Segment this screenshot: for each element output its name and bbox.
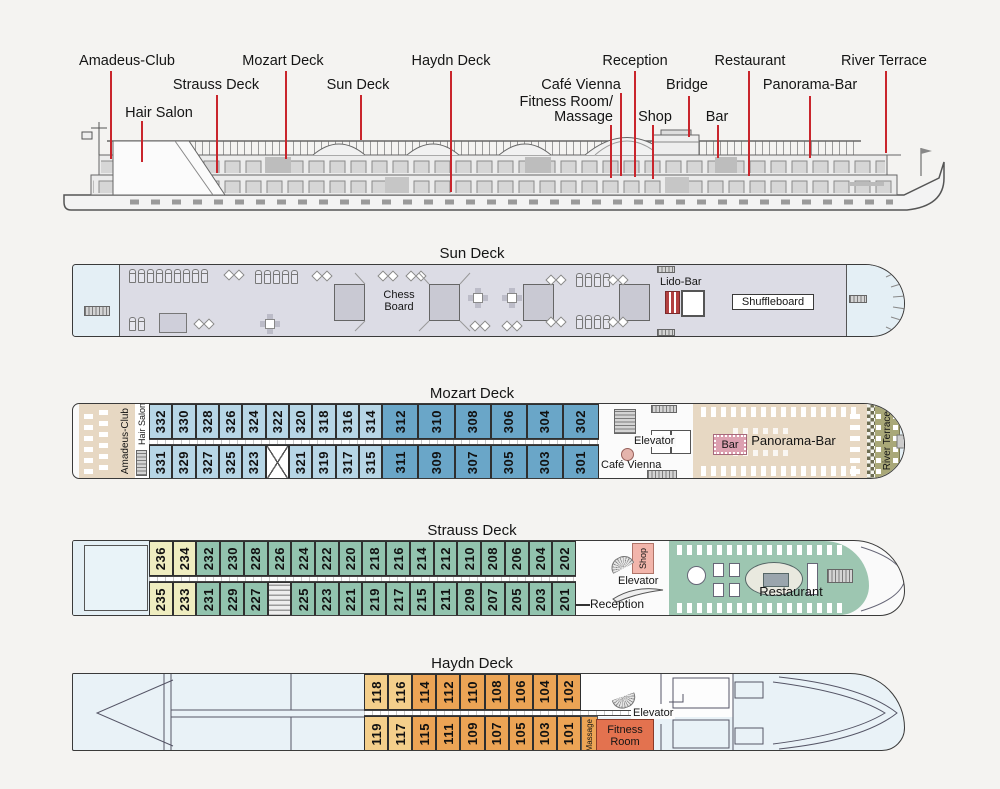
cabin-number: 221: [343, 588, 358, 611]
leader-line-reception: [634, 71, 636, 177]
cabin-number: 301: [573, 451, 588, 474]
cabin-325[interactable]: 325: [219, 445, 242, 479]
cabin-308[interactable]: 308: [455, 404, 491, 439]
leader-line-hair-salon: [141, 121, 143, 162]
stairs-icon: [657, 329, 675, 336]
cabin-number: 110: [465, 681, 480, 703]
cabin-number: 229: [225, 588, 240, 611]
cabin-101[interactable]: 101: [557, 716, 581, 751]
table-icon: [473, 293, 483, 303]
leader-line-restaurant: [748, 71, 750, 176]
window-band: [867, 404, 875, 478]
leader-line-cafe-vienna: [620, 93, 622, 176]
cabin-304[interactable]: 304: [527, 404, 563, 439]
cabin-number: 211: [438, 588, 453, 610]
cabin-number: 208: [485, 547, 500, 570]
cabin-117[interactable]: 117: [388, 716, 412, 751]
haydn-cabin-row-top: 118116114112110108106104102: [364, 674, 581, 710]
massage-vertical-label: Massage: [585, 719, 594, 751]
fitness-room-label: Fitness Room: [602, 724, 648, 748]
cabin-number: 305: [501, 451, 516, 474]
cabin-number: 329: [176, 451, 191, 474]
label-bridge: Bridge: [666, 77, 708, 93]
cabin-number: 209: [462, 588, 477, 611]
label-hair-salon: Hair Salon: [125, 105, 193, 121]
stairs-icon: [827, 569, 853, 583]
cabin-number: 328: [200, 410, 215, 433]
cabin-number: 103: [537, 722, 552, 745]
label-cafe-vienna: Café Vienna: [541, 77, 621, 93]
cabin-227[interactable]: 227: [244, 582, 268, 616]
hair-salon-vertical-label: Hair Salon: [135, 404, 149, 444]
cabin-228[interactable]: 228: [244, 541, 268, 576]
sun-deck-stern-area: [73, 265, 120, 336]
cabin-number: 104: [537, 680, 552, 703]
stairs-icon: [647, 470, 677, 479]
cabin-203[interactable]: 203: [529, 582, 553, 616]
cabin-number: 215: [414, 588, 429, 611]
cabin-331[interactable]: 331: [149, 445, 172, 479]
deck-plan-page: Amadeus-Club Mozart Deck Haydn Deck Rece…: [0, 0, 1000, 789]
cabin-number: 117: [393, 723, 408, 745]
cabin-221[interactable]: 221: [339, 582, 363, 616]
cabin-number: 307: [465, 451, 480, 474]
table-icon: [729, 563, 740, 577]
table-icon: [713, 583, 724, 597]
stairs-icon: [657, 266, 675, 273]
cabin-210[interactable]: 210: [457, 541, 481, 576]
cabin-number: 318: [316, 410, 331, 433]
stairs-icon: [614, 409, 636, 434]
cabin-208[interactable]: 208: [481, 541, 505, 576]
cabin-number: 228: [248, 547, 263, 570]
cabin-211[interactable]: 211: [434, 582, 458, 616]
leader-line-sun-deck: [360, 95, 362, 140]
strauss-stern-area: [73, 541, 150, 615]
cabin-number: 325: [223, 451, 238, 474]
mozart-cabin-row-top: 3323303283263243223203183163143123103083…: [149, 404, 599, 439]
leader-line-mozart-deck: [285, 71, 287, 159]
canopy-skylight: [523, 284, 554, 321]
strauss-deck-title: Strauss Deck: [72, 522, 872, 539]
cabin-103[interactable]: 103: [533, 716, 557, 751]
cabin-number: 216: [391, 547, 406, 570]
label-bar: Bar: [706, 109, 729, 125]
lounger-row: [576, 315, 612, 333]
cabin-number: 319: [316, 451, 331, 474]
cabin-number: 302: [573, 410, 588, 433]
cabin-212[interactable]: 212: [434, 541, 458, 576]
cabin-105[interactable]: 105: [509, 716, 533, 751]
cabin-232[interactable]: 232: [196, 541, 220, 576]
lounger-row: [129, 317, 147, 335]
cabin-220[interactable]: 220: [339, 541, 363, 576]
sun-deck-plan: Chess Board Lido-Bar Shuffleboard: [72, 264, 905, 337]
leader-line-strauss-deck: [216, 95, 218, 173]
cabin-number: 210: [462, 547, 477, 570]
cabin-108[interactable]: 108: [485, 674, 509, 710]
cabin-327[interactable]: 327: [196, 445, 219, 479]
cabin-number: 202: [557, 547, 572, 570]
cabin-number: 114: [417, 681, 432, 703]
table-icon: [471, 321, 489, 331]
cabin-202[interactable]: 202: [552, 541, 576, 576]
label-fitness-line1: Fitness Room/: [520, 94, 613, 110]
cabin-number: 314: [363, 410, 378, 433]
cabin-222[interactable]: 222: [315, 541, 339, 576]
river-terrace-vertical-label: River Terrace: [875, 404, 899, 478]
lido-bar-counter: [665, 291, 680, 314]
cabin-number: 326: [223, 410, 238, 433]
leader-line-river-terrace: [885, 71, 887, 153]
cabin-323[interactable]: 323: [242, 445, 265, 479]
leader-line-bridge: [688, 96, 690, 137]
cabin-315[interactable]: 315: [359, 445, 382, 479]
restaurant-label: Restaurant: [731, 584, 851, 599]
cabin-321[interactable]: 321: [289, 445, 312, 479]
cabin-number: 327: [200, 451, 215, 474]
cabin-309[interactable]: 309: [418, 445, 454, 479]
label-sun-deck: Sun Deck: [327, 77, 390, 93]
strauss-deck-plan: 2362342322302282262242222202182162142122…: [72, 540, 905, 616]
lido-bar-servery: [681, 290, 705, 317]
cabin-number: 331: [153, 451, 168, 474]
cabin-109[interactable]: 109: [460, 716, 484, 751]
leader-line-bar: [717, 125, 719, 158]
cabin-number: 222: [319, 547, 334, 570]
cabin-310[interactable]: 310: [418, 404, 454, 439]
table-icon: [379, 271, 397, 281]
label-restaurant: Restaurant: [715, 53, 786, 69]
cabin-number: 220: [343, 547, 358, 570]
cabin-118[interactable]: 118: [364, 674, 388, 710]
reception-label: Reception: [590, 597, 644, 611]
cabin-205[interactable]: 205: [505, 582, 529, 616]
elevator-label: Elevator: [618, 575, 658, 587]
cabin-number: 203: [533, 588, 548, 611]
canopy-skylight: [619, 284, 650, 321]
cabin-214[interactable]: 214: [410, 541, 434, 576]
cabin-107[interactable]: 107: [485, 716, 509, 751]
cabin-number: 233: [177, 588, 192, 611]
strauss-cabin-row-top: 2362342322302282262242222202182162142122…: [149, 541, 576, 576]
cabin-number: 322: [270, 410, 285, 433]
cabin-316[interactable]: 316: [336, 404, 359, 439]
table-icon: [609, 275, 627, 285]
cabin-number: 226: [272, 547, 287, 570]
cabin-number: 316: [340, 410, 355, 433]
haydn-cabin-row-bottom: 119117115111109107105103101: [364, 716, 581, 751]
cabin-306[interactable]: 306: [491, 404, 527, 439]
crossed-cell: [266, 445, 289, 479]
haydn-deck-title: Haydn Deck: [72, 655, 872, 672]
cabin-102[interactable]: 102: [557, 674, 581, 710]
cabin-114[interactable]: 114: [412, 674, 436, 710]
cabin-305[interactable]: 305: [491, 445, 527, 479]
cabin-229[interactable]: 229: [220, 582, 244, 616]
label-amadeus-club: Amadeus-Club: [79, 53, 175, 69]
cabin-number: 118: [369, 681, 384, 703]
cabin-119[interactable]: 119: [364, 716, 388, 751]
cabin-number: 101: [561, 722, 576, 745]
cabin-number: 108: [489, 680, 504, 703]
ship-side-view: [55, 118, 945, 218]
cabin-324[interactable]: 324: [242, 404, 265, 439]
cabin-number: 235: [153, 588, 168, 611]
cabin-number: 320: [293, 410, 308, 433]
stairs-icon: [651, 405, 677, 413]
reception-pointer-line: [576, 604, 590, 606]
cabin-217[interactable]: 217: [386, 582, 410, 616]
mozart-deck-title: Mozart Deck: [72, 385, 872, 402]
cabin-number: 234: [177, 547, 192, 570]
cabin-number: 119: [369, 723, 384, 745]
label-fitness-room-massage: Fitness Room/ Massage: [460, 95, 613, 125]
fitness-room-area: Fitness Room: [596, 719, 654, 751]
cabin-number: 218: [367, 547, 382, 570]
table-icon: [265, 319, 275, 329]
cabin-206[interactable]: 206: [505, 541, 529, 576]
cabin-number: 204: [533, 547, 548, 570]
cabin-number: 109: [465, 722, 480, 745]
cabin-number: 224: [296, 547, 311, 570]
sun-deck-title: Sun Deck: [72, 245, 872, 262]
cabin-number: 111: [441, 723, 456, 745]
label-shop: Shop: [638, 109, 672, 125]
cabin-number: 105: [513, 722, 528, 745]
stairs-icon: [849, 295, 867, 303]
mozart-deck-plan: Amadeus-Club Hair Salon 3323303283263243…: [72, 403, 905, 479]
cabin-number: 214: [414, 547, 429, 570]
table-icon: [503, 321, 521, 331]
cabin-104[interactable]: 104: [533, 674, 557, 710]
lounger-row: [129, 269, 210, 287]
restaurant-area: [669, 541, 869, 615]
label-reception: Reception: [602, 53, 667, 69]
cabin-number: 212: [438, 547, 453, 570]
stairs-cell: [268, 582, 292, 616]
cabin-303[interactable]: 303: [527, 445, 563, 479]
leader-line-panorama-bar: [809, 96, 811, 158]
label-panorama-bar: Panorama-Bar: [763, 77, 857, 93]
cabin-number: 115: [417, 723, 432, 745]
cabin-209[interactable]: 209: [457, 582, 481, 616]
cabin-115[interactable]: 115: [412, 716, 436, 751]
lounger-row: [576, 273, 612, 291]
cabin-number: 102: [561, 680, 576, 703]
elevator-label: Elevator: [632, 435, 676, 447]
table-icon: [507, 293, 517, 303]
cabin-322[interactable]: 322: [266, 404, 289, 439]
label-strauss-deck: Strauss Deck: [173, 77, 259, 93]
cabin-number: 317: [340, 451, 355, 474]
cabin-236[interactable]: 236: [149, 541, 173, 576]
amadeus-club-vertical-label: Amadeus-Club: [115, 404, 135, 478]
cabin-235[interactable]: 235: [149, 582, 173, 616]
cabin-number: 324: [246, 410, 261, 433]
cabin-215[interactable]: 215: [410, 582, 434, 616]
cabin-233[interactable]: 233: [173, 582, 197, 616]
panorama-bar-label: Panorama-Bar: [721, 433, 866, 448]
mozart-lobby-area: Elevator Café Vienna: [599, 404, 693, 478]
stairs-icon: [84, 306, 110, 316]
cabin-317[interactable]: 317: [336, 445, 359, 479]
cabin-number: 310: [429, 410, 444, 433]
cabin-225[interactable]: 225: [291, 582, 315, 616]
cabin-number: 227: [248, 588, 263, 611]
lido-bar-label: Lido-Bar: [660, 276, 702, 288]
cabin-224[interactable]: 224: [291, 541, 315, 576]
leader-line-haydn-deck: [450, 71, 452, 192]
cabin-number: 219: [367, 588, 382, 611]
cabin-number: 230: [225, 547, 240, 570]
shuffleboard-label: Shuffleboard: [732, 294, 814, 310]
cabin-330[interactable]: 330: [172, 404, 195, 439]
cabin-number: 308: [465, 410, 480, 433]
cabin-329[interactable]: 329: [172, 445, 195, 479]
cabin-110[interactable]: 110: [460, 674, 484, 710]
cabin-219[interactable]: 219: [362, 582, 386, 616]
table-icon: [609, 317, 627, 327]
cabin-number: 312: [393, 410, 408, 433]
cabin-number: 201: [557, 588, 572, 611]
cabin-204[interactable]: 204: [529, 541, 553, 576]
cabin-332[interactable]: 332: [149, 404, 172, 439]
canopy-skylight: [334, 284, 365, 321]
shop-area: Shop: [632, 543, 654, 574]
table-icon: [407, 271, 425, 281]
cabin-number: 217: [391, 588, 406, 611]
cabin-number: 311: [393, 451, 408, 473]
cabin-106[interactable]: 106: [509, 674, 533, 710]
leader-line-fitness: [610, 125, 612, 178]
cabin-207[interactable]: 207: [481, 582, 505, 616]
cabin-number: 207: [485, 588, 500, 611]
haydn-deck-plan: 118116114112110108106104102 119117115111…: [72, 673, 905, 751]
strauss-cabin-row-bottom: 2352332312292272252232212192172152112092…: [149, 582, 576, 616]
cabin-231[interactable]: 231: [196, 582, 220, 616]
cabin-112[interactable]: 112: [436, 674, 460, 710]
cabin-230[interactable]: 230: [220, 541, 244, 576]
hair-salon-room: Hair Salon: [135, 404, 150, 478]
cabin-223[interactable]: 223: [315, 582, 339, 616]
stern-room: [84, 545, 148, 611]
shop-vertical-label: Shop: [638, 548, 648, 569]
stairs-icon: [136, 450, 147, 476]
table-icon: [547, 275, 565, 285]
mozart-cabin-row-bottom: 3313293273253233213193173153113093073053…: [149, 445, 599, 479]
cabin-226[interactable]: 226: [268, 541, 292, 576]
strauss-lobby-area: Shop Elevator Reception: [576, 541, 669, 615]
cabin-number: 223: [319, 588, 334, 611]
lounger-row: [255, 270, 300, 288]
label-fitness-line2: Massage: [554, 109, 613, 125]
cabin-319[interactable]: 319: [312, 445, 335, 479]
chess-board-label: Chess Board: [373, 289, 425, 313]
cabin-number: 107: [489, 722, 504, 745]
cabin-312[interactable]: 312: [382, 404, 418, 439]
round-table-icon: [687, 566, 706, 585]
canopy-skylight: [429, 284, 460, 321]
cabin-number: 232: [201, 547, 216, 570]
cabin-number: 112: [441, 681, 456, 703]
cabin-307[interactable]: 307: [455, 445, 491, 479]
deck-box-icon: [159, 313, 187, 333]
cabin-234[interactable]: 234: [173, 541, 197, 576]
cabin-328[interactable]: 328: [196, 404, 219, 439]
cabin-301[interactable]: 301: [563, 445, 599, 479]
cabin-314[interactable]: 314: [359, 404, 382, 439]
stairs-fan-icon: [608, 552, 635, 574]
cabin-number: 205: [509, 588, 524, 611]
table-icon: [713, 563, 724, 577]
leader-line-shop: [652, 125, 654, 179]
cabin-318[interactable]: 318: [312, 404, 335, 439]
cabin-number: 231: [201, 588, 216, 611]
cabin-326[interactable]: 326: [219, 404, 242, 439]
cabin-201[interactable]: 201: [552, 582, 576, 616]
cabin-number: 304: [537, 410, 552, 433]
cabin-320[interactable]: 320: [289, 404, 312, 439]
table-icon: [195, 319, 213, 329]
cabin-number: 315: [363, 451, 378, 474]
cabin-216[interactable]: 216: [386, 541, 410, 576]
cabin-number: 116: [393, 681, 408, 703]
cabin-number: 106: [513, 680, 528, 703]
cabin-302[interactable]: 302: [563, 404, 599, 439]
table-icon: [547, 317, 565, 327]
cabin-number: 321: [293, 451, 308, 474]
cabin-number: 309: [429, 451, 444, 474]
cabin-111[interactable]: 111: [436, 716, 460, 751]
cabin-number: 225: [296, 588, 311, 611]
cabin-311[interactable]: 311: [382, 445, 418, 479]
cabin-number: 303: [537, 451, 552, 474]
leader-line-amadeus-club: [110, 71, 112, 159]
label-mozart-deck: Mozart Deck: [242, 53, 323, 69]
cabin-number: 206: [509, 547, 524, 570]
cabin-116[interactable]: 116: [388, 674, 412, 710]
label-river-terrace: River Terrace: [841, 53, 927, 69]
river-terrace-area: River Terrace: [875, 404, 900, 478]
cabin-218[interactable]: 218: [362, 541, 386, 576]
cabin-number: 236: [153, 547, 168, 570]
cabin-number: 323: [246, 451, 261, 474]
elevator-label: Elevator: [631, 707, 675, 719]
cabin-number: 332: [153, 410, 168, 433]
cabin-number: 306: [501, 410, 516, 433]
cabin-number: 330: [176, 410, 191, 433]
label-haydn-deck: Haydn Deck: [412, 53, 491, 69]
